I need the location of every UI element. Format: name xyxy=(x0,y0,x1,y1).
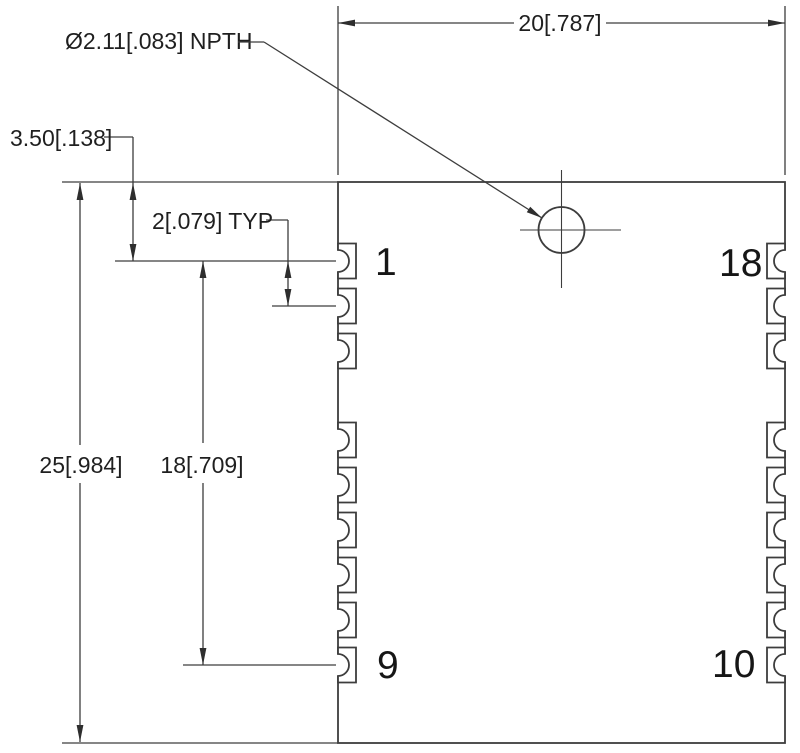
technical-drawing-canvas: 20[.787] 25[.984] 18[.709] 3.50[.138] 2[… xyxy=(0,0,800,753)
arrowhead xyxy=(77,183,84,200)
dimension-overall-height: 25[.984] xyxy=(39,183,122,742)
pin-number-10: 10 xyxy=(712,643,755,686)
dimension-pin-pitch: 2[.079] TYP xyxy=(152,208,291,306)
pin-number-18: 18 xyxy=(719,242,762,285)
arrowhead xyxy=(130,183,137,200)
arrowhead xyxy=(338,20,355,27)
dimension-pin1-offset: 3.50[.138] xyxy=(10,125,136,261)
pcb-module-dimension-drawing: 20[.787] 25[.984] 18[.709] 3.50[.138] 2[… xyxy=(0,0,800,753)
overall-width-label: 20[.787] xyxy=(518,10,601,36)
pin-number-1: 1 xyxy=(375,241,397,284)
pin1-offset-label: 3.50[.138] xyxy=(10,125,112,151)
npth-hole xyxy=(520,170,621,288)
hole-callout: Ø2.11[.083] NPTH xyxy=(65,28,542,218)
arrowhead xyxy=(285,261,292,278)
arrowhead xyxy=(77,725,84,742)
dimension-overall-width: 20[.787] xyxy=(338,10,785,36)
arrowhead xyxy=(285,289,292,306)
pin-number-9: 9 xyxy=(377,644,399,687)
arrowhead xyxy=(200,261,207,278)
hole-callout-label: Ø2.11[.083] NPTH xyxy=(65,28,253,54)
pin-pitch-label: 2[.079] TYP xyxy=(152,208,273,234)
arrowhead xyxy=(527,207,542,218)
pin-span-label: 18[.709] xyxy=(160,452,243,478)
leader-line xyxy=(264,42,542,218)
arrowhead xyxy=(768,20,785,27)
dimension-pin-span: 18[.709] xyxy=(160,261,243,665)
overall-height-label: 25[.984] xyxy=(39,452,122,478)
arrowhead xyxy=(200,648,207,665)
arrowhead xyxy=(130,244,137,261)
